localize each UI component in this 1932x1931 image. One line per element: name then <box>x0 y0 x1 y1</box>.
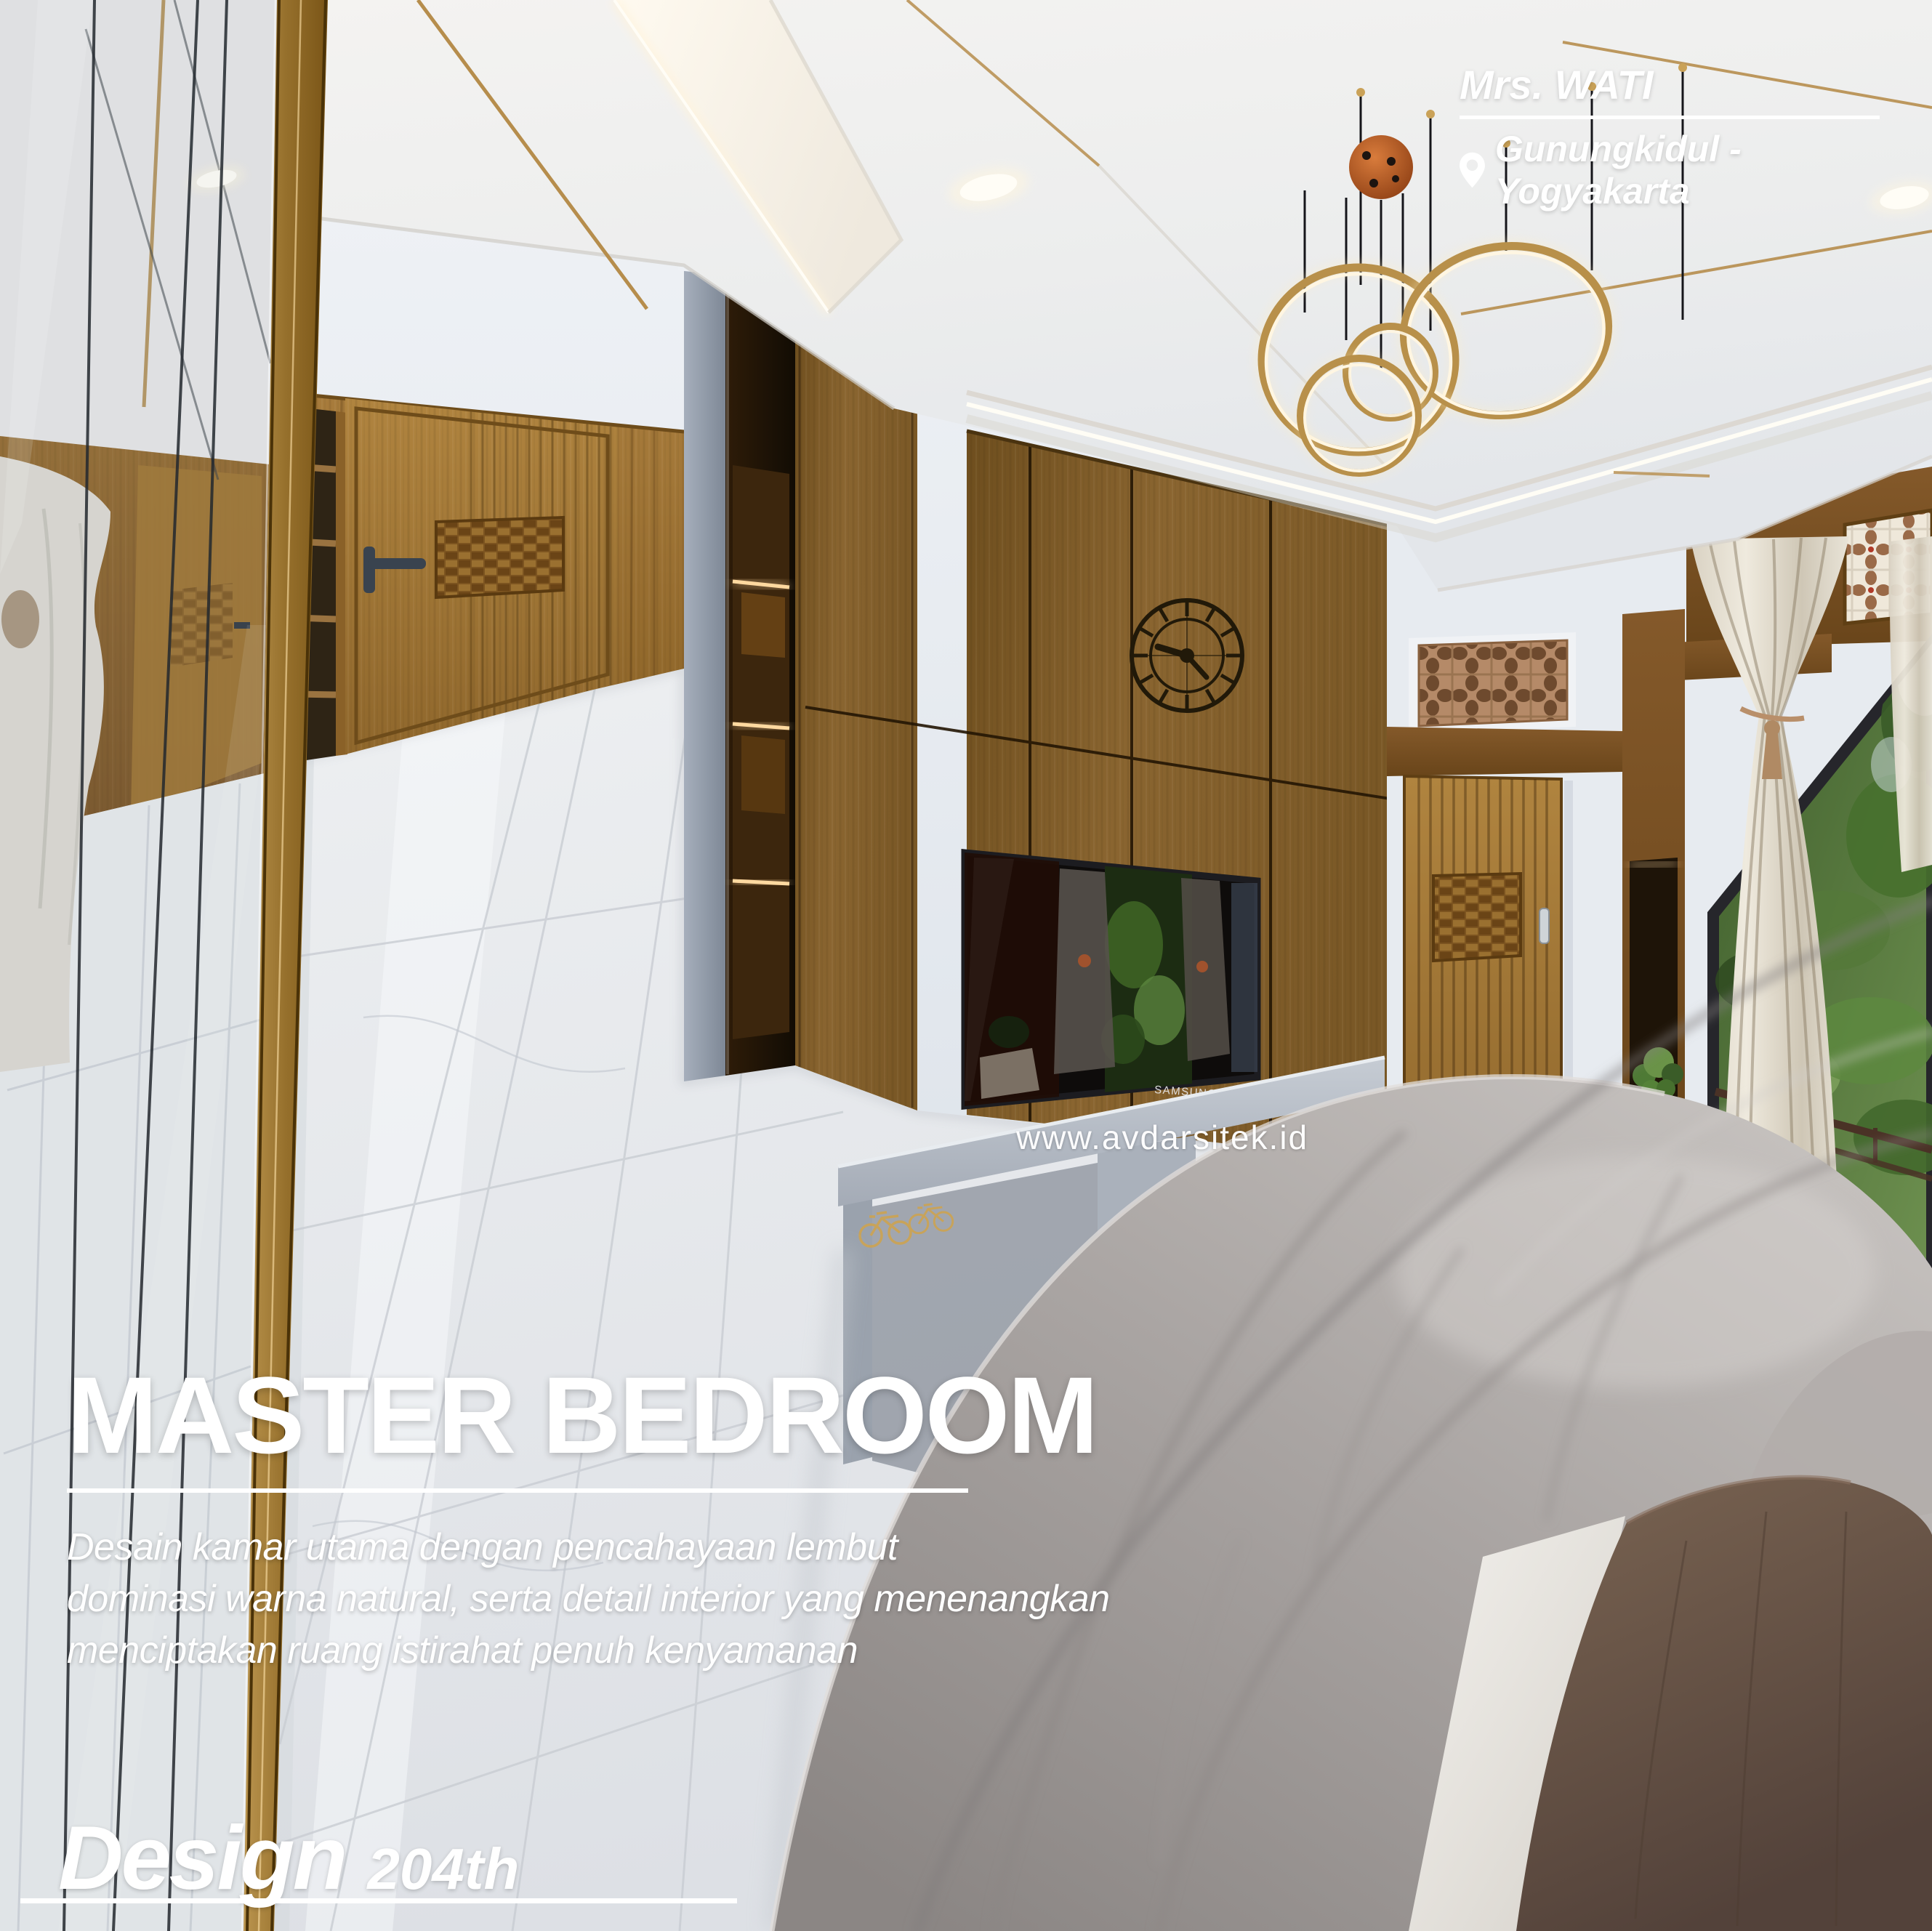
door-woven-inset <box>436 517 563 597</box>
wardrobe-nook <box>678 256 795 1081</box>
location-pin-icon <box>1460 152 1485 188</box>
description-line: Desain kamar utama dengan pencahayaan le… <box>67 1522 1110 1573</box>
design-number-block: Design 204th <box>58 1807 519 1910</box>
breeze-block-panel <box>1409 632 1576 734</box>
wall-clock <box>1132 600 1242 711</box>
title-block: MASTER BEDROOM Desain kamar utama dengan… <box>67 1360 1110 1677</box>
client-name-rule <box>1460 116 1880 119</box>
client-info: Mrs. WATI Gunungkidul - Yogyakarta <box>1460 61 1932 212</box>
design-number: 204th <box>367 1836 519 1903</box>
curtain-tassel <box>1762 720 1782 779</box>
chandelier-canopy <box>1349 135 1413 199</box>
door-header-beam <box>1387 727 1622 776</box>
design-rule <box>20 1898 737 1903</box>
client-location: Gunungkidul - Yogyakarta <box>1495 128 1932 212</box>
watermark: www.avdarsitek.id <box>1016 1118 1308 1157</box>
plant-column <box>1622 609 1685 1164</box>
design-label: Design <box>58 1807 345 1910</box>
title-rule <box>67 1488 968 1493</box>
page-title: MASTER BEDROOM <box>67 1360 1110 1470</box>
bedroom-design-poster: SAMSUNG <box>0 0 1932 1931</box>
sliding-door-handle <box>1539 908 1549 943</box>
sliding-door-woven-inset <box>1433 874 1521 961</box>
description-line: menciptakan ruang istirahat penuh kenyam… <box>67 1625 1110 1677</box>
tv: SAMSUNG <box>965 850 1257 1108</box>
client-name: Mrs. WATI <box>1460 61 1932 108</box>
description-line: dominasi warna natural, serta detail int… <box>67 1573 1110 1625</box>
